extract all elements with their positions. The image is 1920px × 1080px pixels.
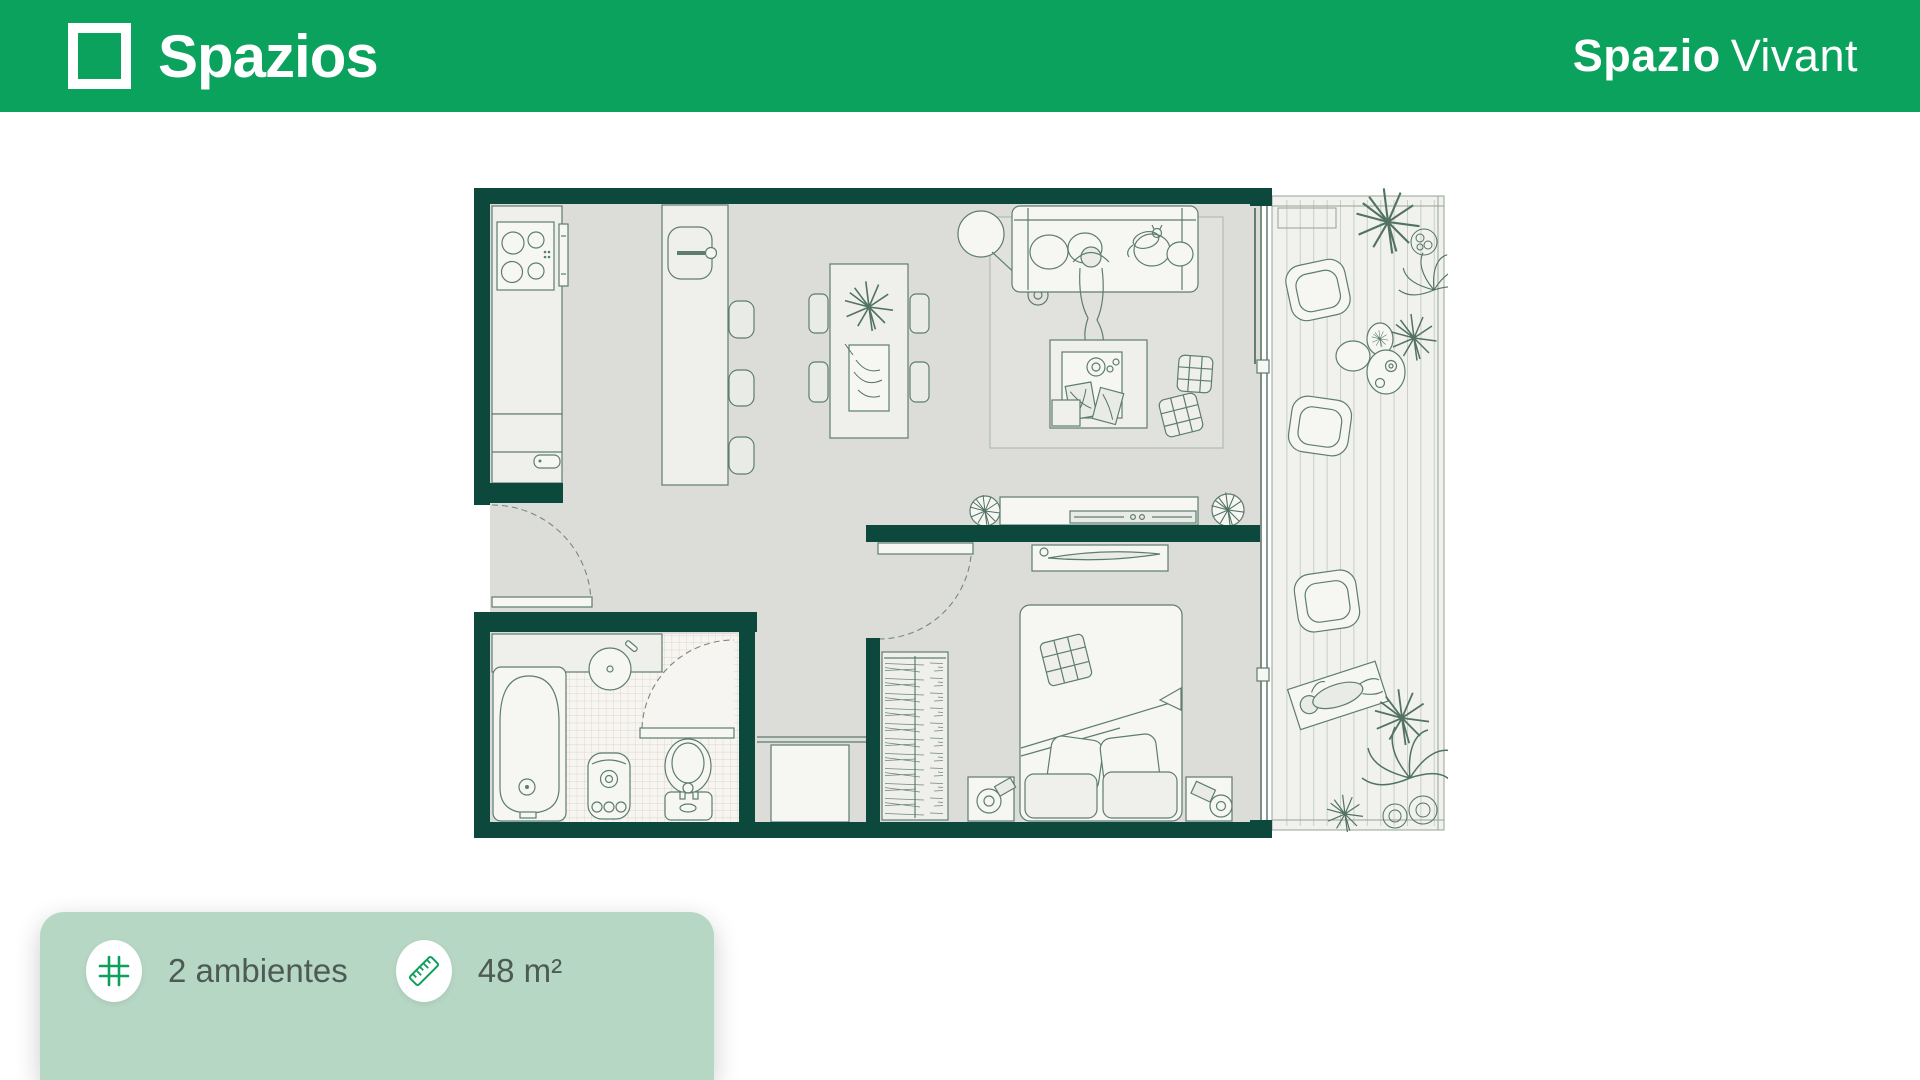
bidet <box>588 753 630 819</box>
dining-chair <box>809 294 828 333</box>
cooktop <box>497 222 554 290</box>
coffee-table <box>1050 340 1147 428</box>
area-info: 48 m² <box>396 940 562 1002</box>
wall-oven <box>559 224 568 286</box>
bathtub <box>493 667 566 821</box>
bar-stool <box>729 437 754 474</box>
bathroom <box>492 634 739 822</box>
vanity-counter <box>492 634 662 672</box>
project-title-bold: Spazio <box>1573 30 1721 81</box>
balcony <box>1272 188 1448 832</box>
bed <box>1020 605 1182 821</box>
tv-console-bedroom <box>1032 545 1168 571</box>
toilet <box>665 739 712 820</box>
kitchen <box>492 206 568 483</box>
headboard-cushion <box>1103 772 1177 818</box>
brand: Spazios <box>68 22 378 91</box>
spazios-logo-icon <box>68 23 131 89</box>
balcony-chair <box>1292 568 1361 634</box>
project-title-light: Vivant <box>1731 30 1858 81</box>
fridge-cabinet <box>492 414 562 483</box>
bar-stool <box>729 301 754 338</box>
header-bar: Spazios SpazioVivant <box>0 0 1920 112</box>
wardrobe <box>882 652 948 820</box>
nightstand-left <box>968 777 1016 821</box>
pouf <box>1177 355 1213 393</box>
floorplan-grid-icon <box>86 940 142 1002</box>
nightstand-right <box>1186 777 1232 821</box>
ruler-icon <box>396 940 452 1002</box>
floor-plan <box>473 188 1448 839</box>
unit-info-card: 2 ambientes 48 m² <box>40 912 714 1080</box>
area-label: 48 m² <box>478 952 562 990</box>
sofa <box>1012 206 1198 292</box>
fruit-platter <box>845 344 889 411</box>
dining-chair <box>910 362 929 402</box>
balcony-chair <box>1286 394 1353 458</box>
dining-chair <box>809 362 828 402</box>
rooms-label: 2 ambientes <box>168 952 348 990</box>
headboard-cushion <box>1025 774 1097 818</box>
brand-name: Spazios <box>158 22 378 91</box>
pouf <box>1158 392 1204 438</box>
project-title: SpazioVivant <box>1573 30 1858 82</box>
rooms-info: 2 ambientes <box>86 940 348 1002</box>
bar-stool <box>729 370 754 406</box>
dining-chair <box>910 294 929 333</box>
